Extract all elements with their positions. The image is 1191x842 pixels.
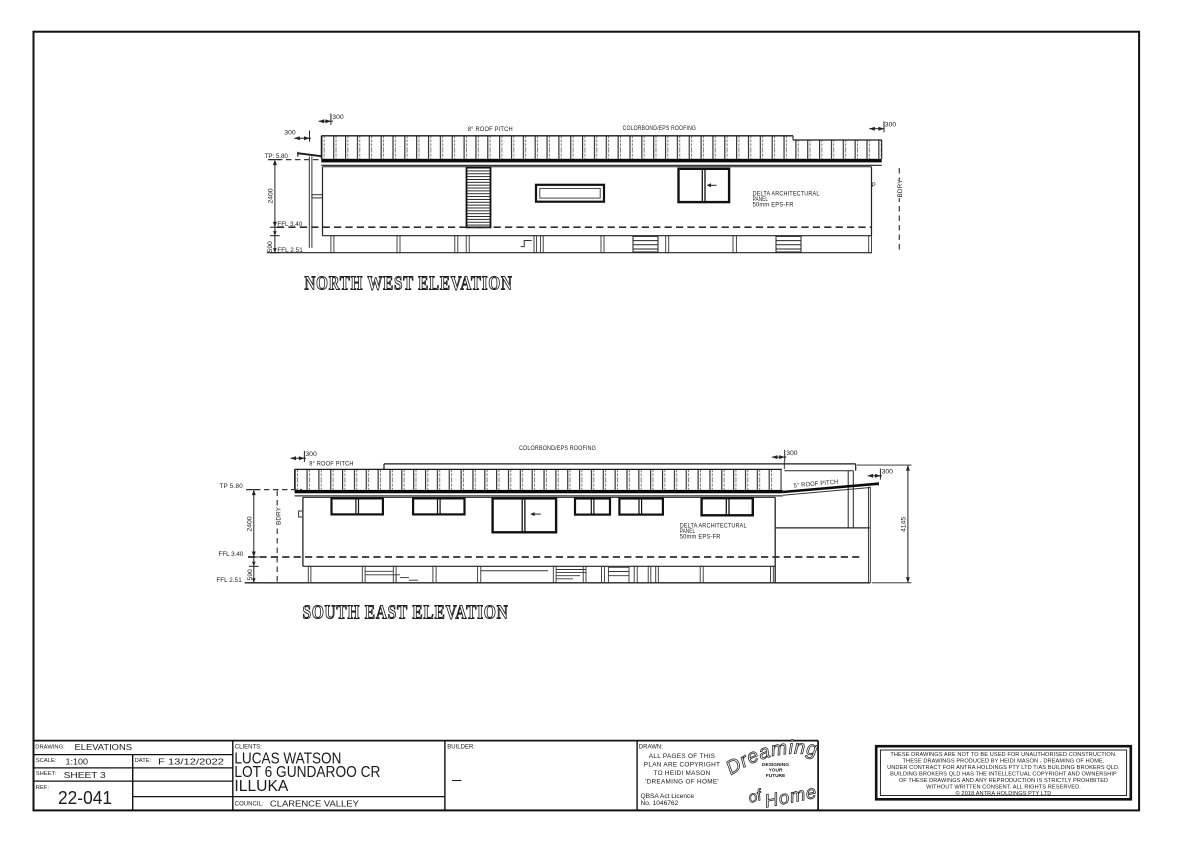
svg-text:SHEET 3: SHEET 3: [64, 771, 107, 780]
svg-text:ELEVATIONS: ELEVATIONS: [75, 742, 133, 752]
svg-text:DRAWN:: DRAWN:: [639, 745, 663, 751]
svg-text:ILLUKA: ILLUKA: [234, 778, 289, 795]
svg-text:BUILDING BROKERS QLD HAS THE I: BUILDING BROKERS QLD HAS THE INTELLECTUA…: [890, 771, 1117, 777]
svg-text:QBSA Act Licence: QBSA Act Licence: [641, 793, 695, 800]
svg-text:UNDER CONTRACT FOR ANTRA HOLDI: UNDER CONTRACT FOR ANTRA HOLDINGS PTY LT…: [887, 765, 1120, 771]
svg-text:300: 300: [305, 451, 317, 458]
svg-text:'DREAMING OF HOME': 'DREAMING OF HOME': [645, 779, 719, 786]
svg-text:F 13/12/2022: F 13/12/2022: [158, 757, 224, 766]
svg-text:COUNCIL:: COUNCIL:: [235, 801, 264, 807]
svg-text:FFL 3.40: FFL 3.40: [219, 551, 244, 558]
svg-text:FFL 3.40: FFL 3.40: [277, 221, 302, 228]
svg-text:FFL 2.51: FFL 2.51: [277, 247, 303, 254]
svg-text:SOUTH EAST ELEVATION: SOUTH EAST ELEVATION: [303, 602, 509, 624]
svg-text:P: P: [872, 183, 876, 189]
svg-text:YOUR: YOUR: [769, 768, 783, 774]
svg-text:© 2018 ANTRA HOLDINGS PTY LTD: © 2018 ANTRA HOLDINGS PTY LTD: [956, 790, 1052, 797]
svg-text:DATE:: DATE:: [135, 758, 152, 764]
svg-text:50mm EPS-FR: 50mm EPS-FR: [680, 533, 721, 540]
svg-text:SHEET:: SHEET:: [36, 771, 57, 777]
svg-text:BUILDER:: BUILDER:: [447, 745, 475, 751]
svg-text:2400: 2400: [247, 516, 254, 531]
svg-text:WITHOUT WRITTEN CONSENT. ALL R: WITHOUT WRITTEN CONSENT. ALL RIGHTS RESE…: [926, 784, 1081, 790]
svg-text:THESE DRAWINGS PRODUCED BY HEI: THESE DRAWINGS PRODUCED BY HEIDI MASON -…: [903, 758, 1105, 764]
svg-text:BDRY: BDRY: [276, 506, 283, 525]
svg-text:50mm EPS-FR: 50mm EPS-FR: [753, 201, 794, 208]
svg-text:4145: 4145: [900, 517, 907, 532]
svg-text:No. 1046762: No. 1046762: [641, 800, 679, 807]
svg-text:590: 590: [267, 241, 274, 253]
svg-text:COLORBOND/EPS ROOFING: COLORBOND/EPS ROOFING: [623, 125, 697, 132]
svg-text:CLARENCE VALLEY: CLARENCE VALLEY: [270, 799, 360, 808]
svg-text:THESE DRAWINGS ARE NOT TO BE U: THESE DRAWINGS ARE NOT TO BE USED FOR UN…: [890, 752, 1117, 758]
svg-text:PLAN ARE COPYRIGHT: PLAN ARE COPYRIGHT: [644, 762, 720, 769]
svg-text:300: 300: [885, 121, 897, 128]
svg-text:300: 300: [284, 130, 296, 137]
svg-text:NORTH WEST ELEVATION: NORTH WEST ELEVATION: [305, 273, 513, 295]
svg-text:FUTURE: FUTURE: [766, 773, 786, 779]
svg-text:DRAWING:: DRAWING:: [35, 744, 65, 750]
svg-text:ALL PAGES OF THIS: ALL PAGES OF THIS: [649, 753, 715, 760]
svg-text:BDRY: BDRY: [897, 179, 904, 198]
svg-text:8° ROOF PITCH: 8° ROOF PITCH: [468, 125, 513, 133]
svg-text:TP 5.80: TP 5.80: [219, 483, 243, 490]
svg-text:22-041: 22-041: [58, 787, 112, 808]
svg-text:1:100: 1:100: [66, 757, 89, 766]
svg-text:300: 300: [332, 114, 344, 121]
svg-text:2400: 2400: [268, 188, 275, 203]
svg-text:OF THESE DRAWINGS AND ANY REPR: OF THESE DRAWINGS AND ANY REPRODUCTION I…: [899, 778, 1108, 784]
svg-text:TO HEIDI MASON: TO HEIDI MASON: [654, 770, 711, 777]
svg-text:300: 300: [882, 468, 894, 475]
svg-text:TP: 5.80: TP: 5.80: [265, 153, 289, 160]
svg-text:FFL 2.51: FFL 2.51: [216, 577, 242, 584]
svg-text:COLORBOND/EPS ROOFING: COLORBOND/EPS ROOFING: [519, 445, 596, 452]
svg-text:SCALE:: SCALE:: [36, 758, 57, 764]
svg-text:REF:: REF:: [36, 785, 50, 791]
svg-text:300: 300: [786, 450, 798, 457]
svg-text:8° ROOF PITCH: 8° ROOF PITCH: [309, 460, 354, 468]
svg-text:DESIGNING: DESIGNING: [762, 762, 789, 768]
svg-text:590: 590: [247, 569, 254, 581]
